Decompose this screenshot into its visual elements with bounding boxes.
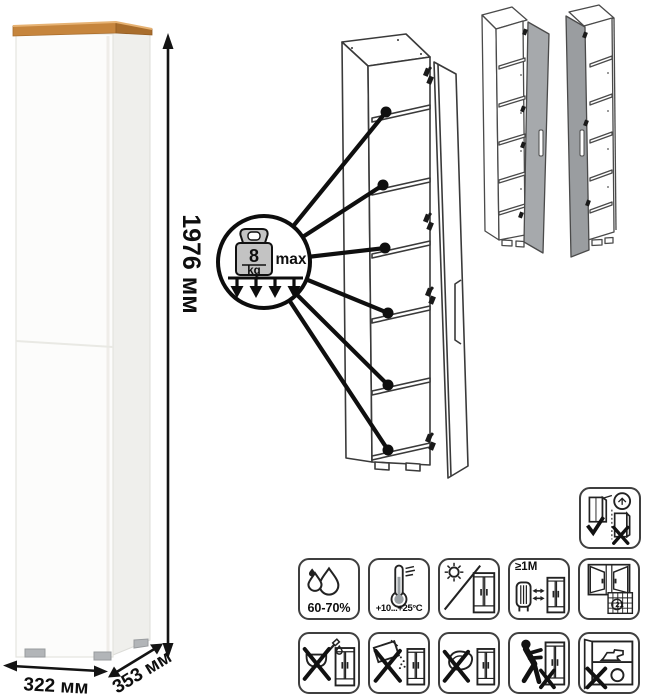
height-dimension: 1976 мм — [163, 33, 206, 659]
calendar-day-label: 21 — [611, 600, 628, 609]
cabinet-render — [13, 22, 152, 660]
open-window-calendar-glyph — [580, 560, 638, 618]
variant-door-gray — [524, 22, 549, 253]
no-liquids-icon — [298, 632, 360, 694]
load-qualifier: max — [275, 251, 306, 268]
distance-label: ≥1M — [515, 561, 549, 573]
person-pushing-glyph — [510, 634, 568, 692]
secure-to-wall-glyph — [581, 489, 639, 547]
humidity-icon: 60-70% — [298, 558, 360, 620]
heat-distance-icon: ≥1M — [508, 558, 570, 620]
wardrobe-glyph — [547, 578, 564, 613]
wardrobe-glyph — [407, 649, 424, 685]
no-abrasive-powder-icon — [368, 632, 430, 694]
no-sponge-glyph — [440, 634, 498, 692]
ventilation-calendar-icon: 21 — [578, 558, 640, 620]
temperature-label: +10...+25°C — [370, 603, 428, 614]
wardrobe-glyph — [474, 573, 495, 612]
width-dimension: 322 мм — [3, 661, 108, 699]
no-overload-glyph — [580, 634, 638, 692]
max-load-badge: 8 kg max — [218, 216, 310, 308]
sun-shade-glyph — [440, 560, 498, 618]
no-wet-sponge-icon — [438, 632, 500, 694]
no-direct-sunlight-icon — [438, 558, 500, 620]
temperature-range-icon: +10...+25°C — [368, 558, 430, 620]
width-label: 322 мм — [23, 674, 89, 698]
person-figure — [521, 640, 541, 682]
height-label: 1976 мм — [177, 214, 205, 314]
product-sheet: 1976 мм 322 мм 353 мм — [0, 0, 648, 700]
kettlebell-glyph — [611, 669, 623, 681]
load-value: 8 — [249, 246, 259, 266]
do-not-drag-icon — [508, 632, 570, 694]
variant-door-gray — [566, 16, 589, 257]
cabinet-wood-top — [13, 22, 152, 36]
open-door — [434, 62, 468, 478]
no-powder-glyph — [370, 634, 428, 692]
variant-left-hinged — [482, 7, 549, 253]
load-unit: kg — [247, 265, 260, 277]
depth-label: 353 мм — [109, 647, 176, 699]
no-liquids-glyph — [300, 634, 358, 692]
no-heavy-items-icon — [578, 632, 640, 694]
cabinet-side-panel — [113, 30, 150, 655]
humidity-label: 60-70% — [300, 601, 358, 615]
variant-right-hinged — [566, 5, 616, 257]
secure-to-wall-icon — [579, 487, 641, 549]
wardrobe-glyph — [477, 649, 494, 685]
